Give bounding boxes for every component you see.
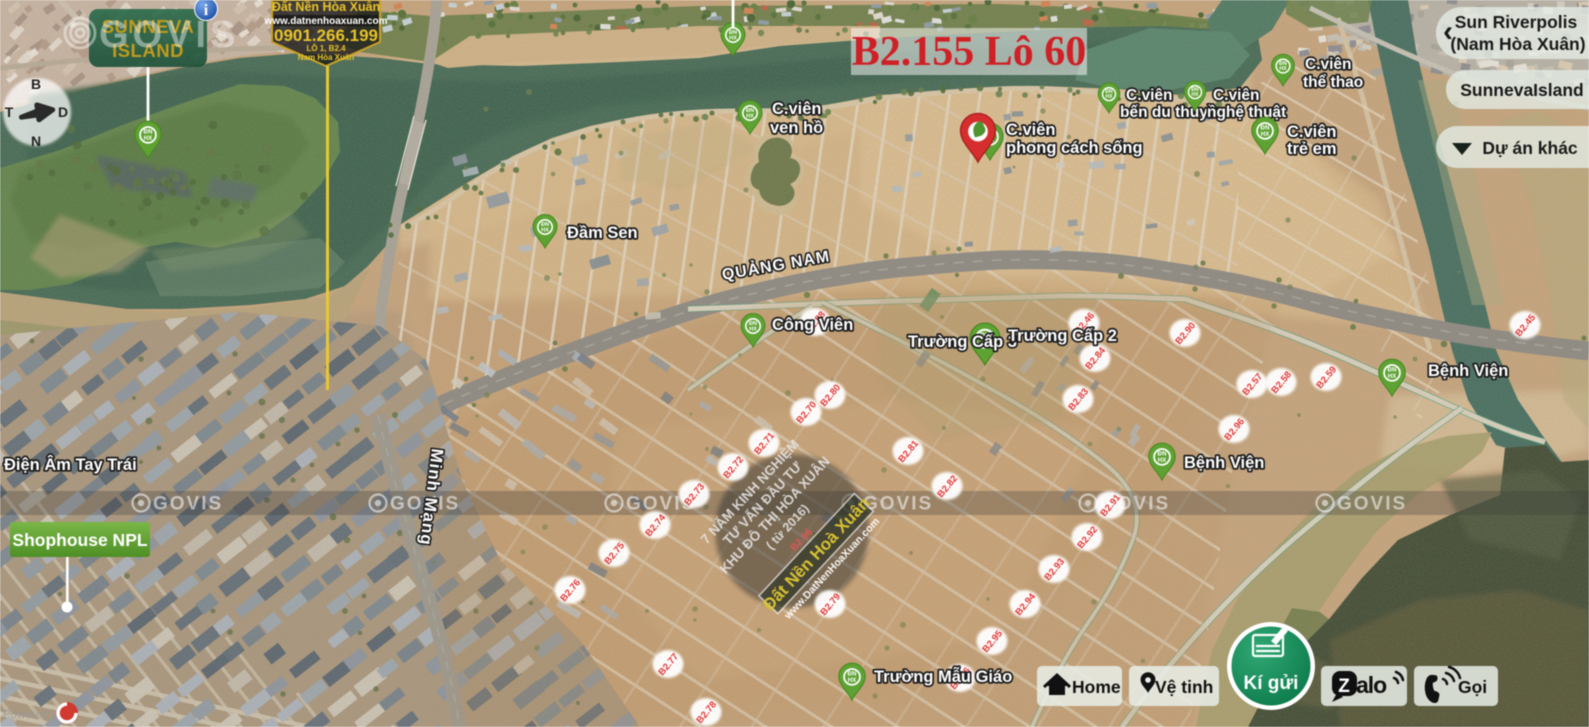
svg-text:ven hồ: ven hồ: [770, 119, 823, 137]
svg-text:HX: HX: [746, 113, 754, 119]
svg-text:Bệnh Viện: Bệnh Viện: [1428, 362, 1508, 380]
svg-text:HX: HX: [1279, 66, 1287, 72]
svg-text:C.viên: C.viên: [1126, 87, 1173, 104]
svg-text:C.viên: C.viên: [1213, 87, 1260, 104]
svg-text:HX: HX: [1388, 373, 1397, 380]
svg-text:T: T: [5, 104, 14, 120]
svg-text:Đầm Sen: Đầm Sen: [567, 224, 638, 242]
svg-text:HX: HX: [541, 227, 549, 233]
svg-text:C.viên: C.viên: [1006, 121, 1056, 139]
svg-text:Gọi: Gọi: [1458, 677, 1487, 697]
svg-text:Dự án khác: Dự án khác: [1482, 138, 1578, 158]
svg-text:C.viên: C.viên: [772, 100, 822, 118]
svg-text:C.viên: C.viên: [1287, 123, 1337, 141]
svg-text:GOVIS: GOVIS: [153, 494, 223, 515]
svg-text:HX: HX: [1106, 94, 1114, 100]
svg-text:B: B: [31, 76, 41, 92]
svg-text:Z: Z: [1338, 676, 1350, 697]
svg-text:Nam Hòa Xuân: Nam Hòa Xuân: [298, 53, 355, 62]
svg-text:LÔ 1, B2.4: LÔ 1, B2.4: [306, 44, 346, 53]
svg-text:nghệ thuật: nghệ thuật: [1207, 104, 1286, 121]
svg-text:B2.155 Lô 60: B2.155 Lô 60: [852, 29, 1087, 75]
svg-text:Trường Mẫu Giáo: Trường Mẫu Giáo: [874, 667, 1012, 686]
svg-text:Công Viên: Công Viên: [772, 316, 853, 334]
svg-text:trẻ em: trẻ em: [1287, 140, 1337, 158]
svg-text:HX: HX: [1261, 131, 1270, 138]
svg-text:Điện Âm Tay Trái: Điện Âm Tay Trái: [4, 455, 137, 474]
svg-text:phong cách sống: phong cách sống: [1006, 139, 1143, 157]
svg-text:C.viên: C.viên: [1305, 56, 1352, 73]
svg-text:GOVIS: GOVIS: [99, 14, 239, 56]
svg-text:Trường Cấp 2: Trường Cấp 2: [1008, 327, 1117, 345]
svg-text:Sun Riverpolis: Sun Riverpolis: [1455, 12, 1578, 32]
svg-text:(Nam Hòa Xuân): (Nam Hòa Xuân): [1450, 34, 1585, 54]
svg-text:Bệnh Viện: Bệnh Viện: [1184, 454, 1264, 472]
svg-text:N: N: [31, 133, 41, 149]
svg-text:Home: Home: [1072, 677, 1121, 697]
svg-text:HX: HX: [848, 677, 857, 684]
svg-text:Vệ tinh: Vệ tinh: [1155, 677, 1213, 697]
svg-text:HX: HX: [144, 135, 153, 142]
svg-text:thể thao: thể thao: [1303, 74, 1363, 91]
svg-text:Đất Nền Hòa Xuân: Đất Nền Hòa Xuân: [272, 0, 380, 14]
svg-text:HX: HX: [1192, 92, 1200, 98]
svg-text:HX: HX: [1158, 457, 1167, 464]
svg-text:Shophouse NPL: Shophouse NPL: [12, 530, 147, 550]
svg-text:SunnevaIsland: SunnevaIsland: [1460, 80, 1584, 100]
svg-text:Trường Cấp 3: Trường Cấp 3: [908, 333, 1017, 351]
svg-text:Kí gửi: Kí gửi: [1244, 673, 1299, 694]
svg-text:GOVIS: GOVIS: [1337, 494, 1407, 515]
svg-text:D: D: [58, 104, 68, 120]
svg-text:HX: HX: [749, 326, 757, 332]
svg-text:0901.266.199: 0901.266.199: [274, 26, 378, 45]
svg-text:Powered by: Powered by: [3, 709, 64, 721]
svg-text:alo: alo: [1356, 672, 1387, 698]
svg-text:HX: HX: [729, 35, 737, 41]
